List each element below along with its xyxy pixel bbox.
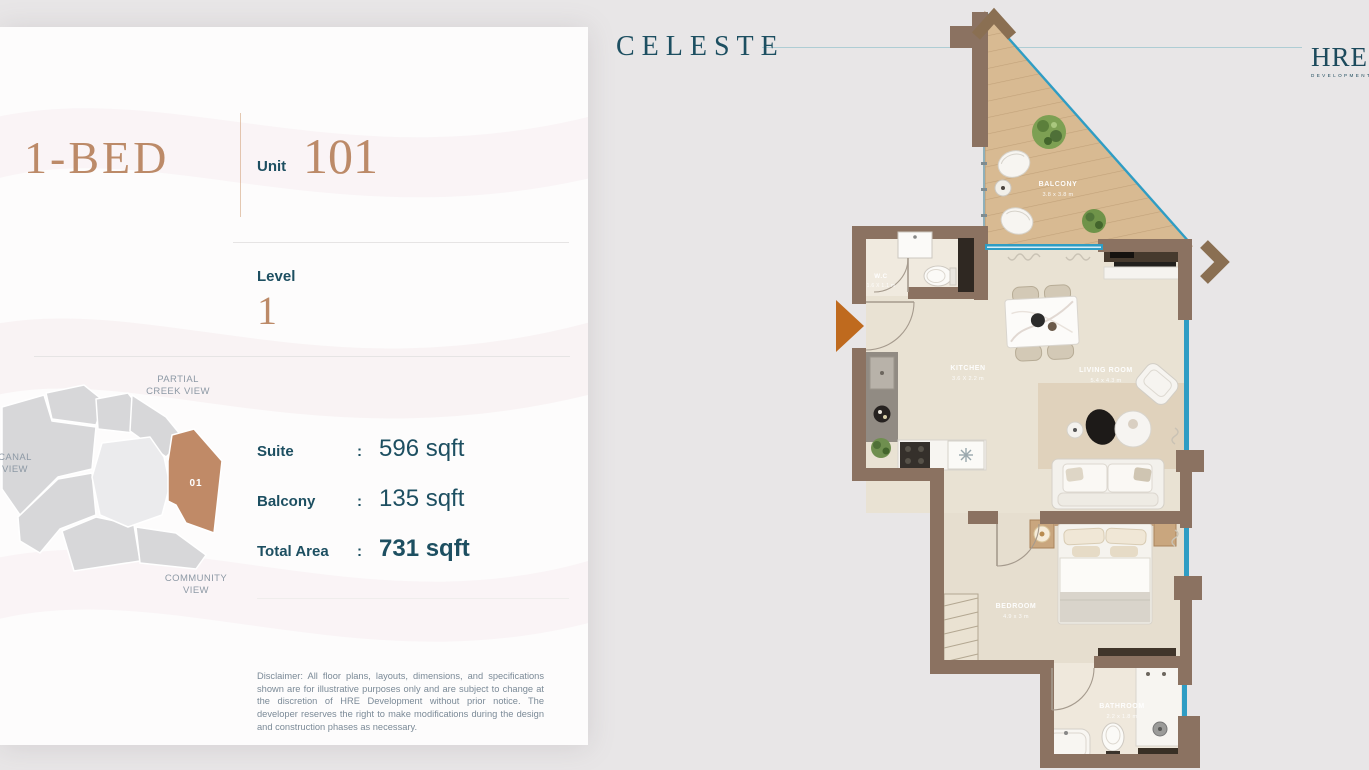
pillow	[1106, 528, 1147, 545]
unit-01-label: 01	[189, 478, 202, 489]
wc-cabinet	[958, 238, 974, 292]
room-label-balcony: BALCONY	[1039, 181, 1078, 188]
area-label: Balcony	[257, 493, 357, 510]
pillow	[1133, 467, 1152, 482]
unit-type-title: 1-BED	[24, 131, 169, 184]
svg-text:5.4 x 4.3 m: 5.4 x 4.3 m	[1091, 378, 1122, 384]
site-map-shape	[46, 385, 104, 425]
celeste-logo: CELESTE	[616, 31, 785, 63]
area-value: 135 sqft	[379, 485, 464, 513]
area-row-suite: Suite : 596 sqft	[257, 435, 577, 485]
hre-logo-subtitle: DEVELOPMENT	[1311, 73, 1369, 78]
map-label-canal-view: CANAL	[0, 452, 32, 463]
site-map-center-building	[92, 437, 170, 527]
pillow	[1065, 467, 1084, 482]
toilet	[924, 266, 952, 286]
site-map: 01 PARTIAL CREEK VIEW CANAL VIEW COMMUNI…	[0, 365, 240, 605]
direction-marker-icon	[1204, 244, 1222, 280]
area-value: 596 sqft	[379, 435, 464, 463]
site-map-shape	[136, 527, 206, 569]
snowflake-icon	[959, 448, 973, 462]
info-card: 1-BED Unit 101 Level 1 01 PARTIAL CREEK …	[0, 27, 588, 745]
disclaimer-text: Disclaimer: All floor plans, layouts, di…	[257, 670, 544, 733]
svg-text:1.6 X 1.1 m: 1.6 X 1.1 m	[867, 283, 896, 289]
unit-number: 101	[303, 127, 378, 185]
cooking-pan	[874, 406, 891, 423]
divider	[34, 356, 570, 357]
hre-logo-text: HRE	[1311, 44, 1369, 71]
hre-logo: HRE DEVELOPMENT	[1311, 44, 1369, 78]
divider	[233, 242, 569, 243]
svg-text:4.9 x 3 m: 4.9 x 3 m	[1003, 614, 1029, 620]
area-row-balcony: Balcony : 135 sqft	[257, 485, 577, 535]
room-label-bedroom: BEDROOM	[996, 603, 1037, 610]
svg-text:CREEK VIEW: CREEK VIEW	[146, 386, 210, 397]
plant	[1082, 209, 1106, 233]
sofa	[1052, 459, 1164, 509]
area-value: 731 sqft	[379, 535, 470, 563]
toilet	[1102, 723, 1124, 751]
room-label-kitchen: KITCHEN	[950, 365, 985, 372]
bed	[1054, 518, 1154, 624]
level-value: 1	[257, 287, 277, 334]
vertical-divider	[240, 113, 241, 217]
unit-label: Unit	[257, 158, 286, 175]
room-label-living-room: LIVING ROOM	[1079, 367, 1133, 374]
area-colon: :	[357, 443, 379, 460]
area-label: Total Area	[257, 543, 357, 560]
plant	[871, 438, 891, 458]
side-table	[995, 180, 1011, 196]
plant	[1032, 115, 1066, 149]
map-label-partial-creek-view: PARTIAL	[157, 374, 199, 385]
map-label-community-view: COMMUNITY	[165, 573, 227, 584]
area-colon: :	[357, 493, 379, 510]
entry-arrow-icon	[836, 300, 864, 352]
svg-text:VIEW: VIEW	[2, 464, 28, 475]
area-row-total: Total Area : 731 sqft	[257, 535, 577, 585]
area-table: Suite : 596 sqft Balcony : 135 sqft Tota…	[257, 435, 577, 585]
blanket	[1060, 592, 1150, 622]
svg-text:3.8 x 3.8 m: 3.8 x 3.8 m	[1043, 192, 1074, 198]
area-colon: :	[357, 543, 379, 560]
divider	[257, 598, 569, 599]
level-label: Level	[257, 268, 295, 285]
svg-text:2.2 x 1.8 m: 2.2 x 1.8 m	[1107, 714, 1138, 720]
svg-text:3.6 X 2.2 m: 3.6 X 2.2 m	[952, 376, 984, 382]
svg-text:VIEW: VIEW	[183, 585, 209, 596]
pillow	[1110, 546, 1138, 557]
balcony	[981, 12, 1192, 246]
stove	[900, 442, 930, 468]
pillow	[1072, 546, 1100, 557]
area-label: Suite	[257, 443, 357, 460]
floor-plan: BALCONY 3.8 x 3.8 m W.C 1.6 X 1.1 m KITC…	[830, 0, 1270, 770]
pillow	[1064, 528, 1105, 545]
room-label-wc: W.C	[874, 273, 888, 280]
room-label-bathroom: BATHROOM	[1099, 703, 1145, 710]
